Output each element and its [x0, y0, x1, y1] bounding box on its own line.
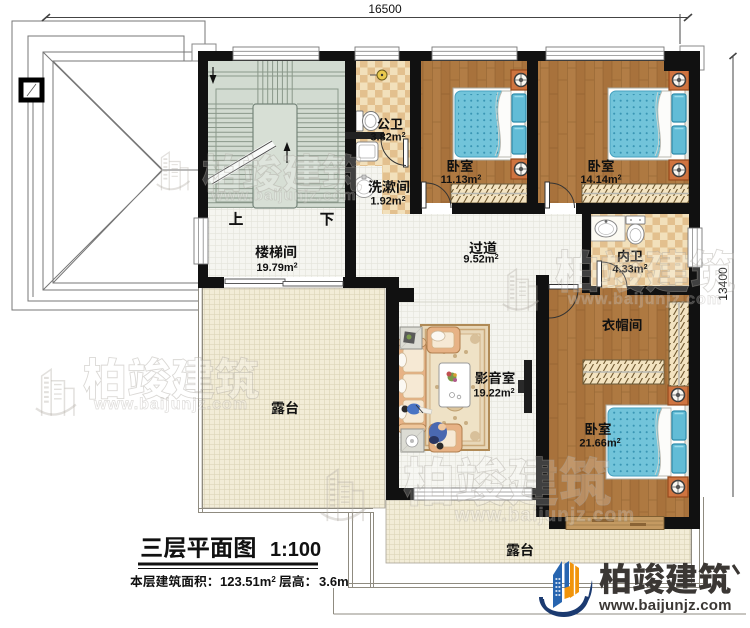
- svg-text:19.22m2: 19.22m2: [473, 386, 514, 400]
- svg-text:21.66m2: 21.66m2: [579, 436, 620, 450]
- svg-text:16500: 16500: [368, 2, 402, 16]
- svg-text:1:100: 1:100: [270, 539, 321, 561]
- svg-text:9.52m2: 9.52m2: [463, 252, 498, 266]
- svg-text:14.14m2: 14.14m2: [580, 173, 621, 187]
- svg-text:www.baijunjz.com: www.baijunjz.com: [567, 291, 722, 308]
- svg-text:123.51m2: 123.51m2: [220, 574, 276, 589]
- svg-text:www.baijunjz.com: www.baijunjz.com: [598, 597, 732, 614]
- svg-text:19.79m2: 19.79m2: [256, 261, 297, 275]
- svg-text:www.baijunjz.com: www.baijunjz.com: [454, 505, 635, 526]
- svg-text:3.82m2: 3.82m2: [370, 130, 405, 144]
- svg-text:1.92m2: 1.92m2: [370, 194, 405, 208]
- svg-text:www.baijunjz.com: www.baijunjz.com: [210, 187, 356, 204]
- svg-text:3.6m: 3.6m: [319, 574, 349, 589]
- svg-text:www.baijunjz.com: www.baijunjz.com: [93, 396, 248, 413]
- svg-text:11.13m2: 11.13m2: [441, 173, 482, 187]
